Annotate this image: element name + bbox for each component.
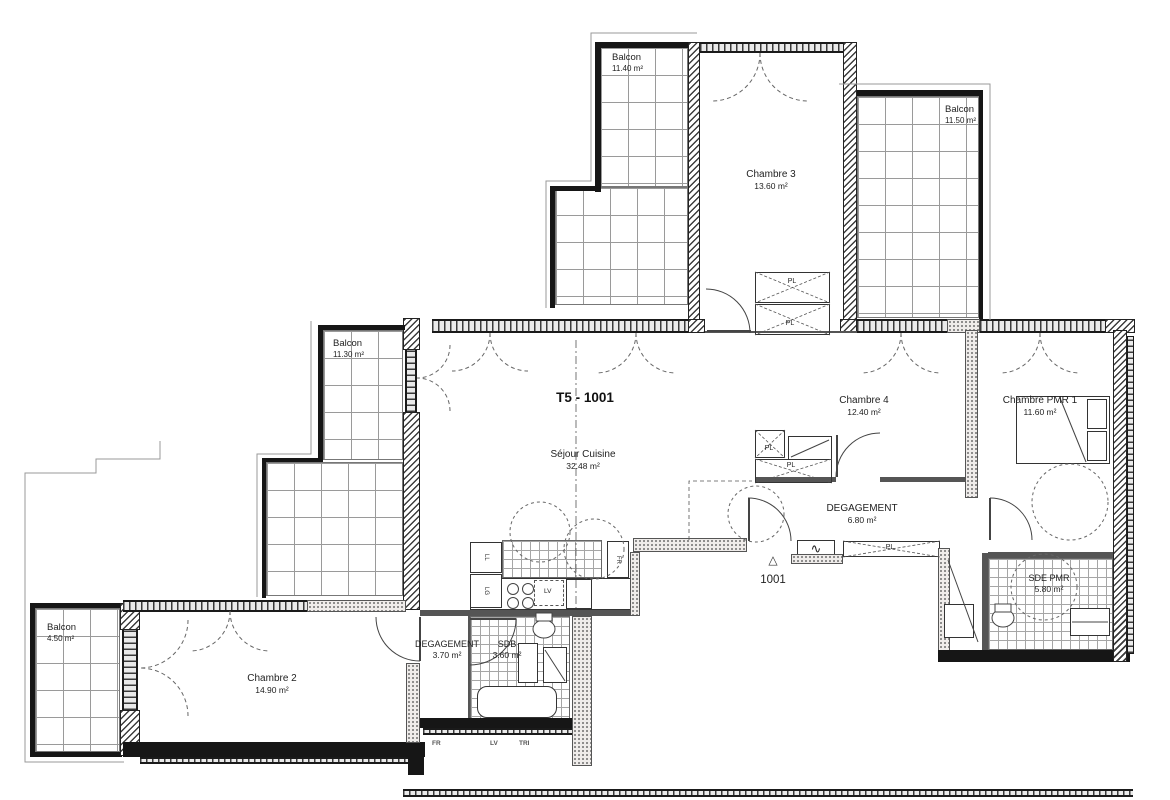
room-label-chambre-pmr1: Chambre PMR 1 11.60 m² — [1003, 395, 1077, 417]
room-label-balcon-bottom-left: Balcon 4.50 m² — [47, 622, 76, 644]
reference-lines — [576, 340, 752, 608]
room-name: Séjour Cuisine — [550, 449, 615, 461]
entry-triangle-icon: △ — [768, 553, 777, 567]
entry-unit-number: 1001 — [760, 574, 786, 586]
room-area: 6.80 m² — [826, 515, 897, 525]
room-area: 4.50 m² — [47, 634, 76, 644]
room-name: DEGAGEMENT — [415, 639, 479, 650]
room-label-balcon-top-left: Balcon 11.40 m² — [612, 52, 643, 74]
room-label-degagement-small: DEGAGEMENT 3.70 m² — [415, 639, 479, 660]
room-name: Balcon — [47, 622, 76, 634]
room-name: Chambre 3 — [746, 169, 795, 181]
room-name: Chambre 4 — [839, 395, 888, 407]
room-name: DEGAGEMENT — [826, 503, 897, 515]
room-area: 13.60 m² — [746, 181, 795, 191]
annotation-lv: LV — [490, 740, 498, 747]
room-area: 11.30 m² — [333, 350, 364, 360]
door-swing-arcs — [376, 289, 1032, 665]
room-name: SDE PMR — [1028, 573, 1069, 584]
closet-label: PL — [786, 320, 795, 327]
room-area: 11.50 m² — [945, 116, 976, 126]
plan-title: T5 - 1001 — [556, 390, 614, 405]
room-label-sejour: Séjour Cuisine 32.48 m² — [550, 449, 615, 471]
room-area: 12.40 m² — [839, 407, 888, 417]
closet-label: PL — [886, 544, 895, 551]
annotation-tri: TRI — [519, 740, 529, 747]
room-area: 3.70 m² — [415, 650, 479, 660]
room-label-chambre4: Chambre 4 12.40 m² — [839, 395, 888, 417]
room-label-balcon-top-right: Balcon 11.50 m² — [945, 104, 976, 126]
room-area: 32.48 m² — [550, 461, 615, 471]
room-name: Chambre PMR 1 — [1003, 395, 1077, 407]
room-name: Balcon — [945, 104, 976, 116]
annotation-fr: FR — [432, 740, 441, 747]
pmr-turning-circles — [510, 464, 1108, 620]
room-area: 5.80 m² — [1028, 584, 1069, 594]
room-name: Balcon — [612, 52, 643, 64]
room-label-sde-pmr: SDE PMR 5.80 m² — [1028, 573, 1069, 594]
room-label-sdb: SDB 3.60 m² — [493, 639, 522, 660]
room-label-balcon-mid-left: Balcon 11.30 m² — [333, 338, 364, 360]
room-name: SDB — [493, 639, 522, 650]
room-area: 11.60 m² — [1003, 407, 1077, 417]
room-area: 14.90 m² — [247, 685, 296, 695]
room-area: 3.60 m² — [493, 650, 522, 660]
closet-label: PL — [788, 278, 797, 285]
room-area: 11.40 m² — [612, 64, 643, 74]
room-label-degagement-main: DEGAGEMENT 6.80 m² — [826, 503, 897, 525]
fixture-lines — [508, 398, 1109, 681]
room-label-chambre3: Chambre 3 13.60 m² — [746, 169, 795, 191]
room-name: Balcon — [333, 338, 364, 350]
room-name: Chambre 2 — [247, 673, 296, 685]
window-swing-arcs — [140, 53, 1080, 716]
floor-plan: LL LG FR LV ∿ — [0, 0, 1170, 800]
closet-label: PL — [787, 462, 796, 469]
closet-label: PL — [765, 445, 774, 452]
room-label-chambre2: Chambre 2 14.90 m² — [247, 673, 296, 695]
